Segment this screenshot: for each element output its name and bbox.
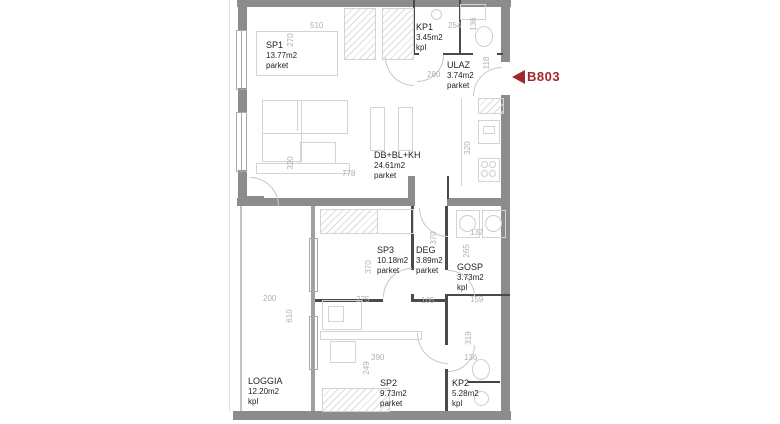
wall-segment-bottom bbox=[233, 411, 511, 420]
floorplan-canvas: SP1 13.77m2 parket KP1 3.45m2 kpl ULAZ 3… bbox=[0, 0, 780, 424]
dining-set-b bbox=[398, 107, 413, 151]
kitchen-sink-basin bbox=[483, 126, 495, 134]
dimension-label: 390 bbox=[371, 353, 384, 363]
room-area: 3.74m2 bbox=[447, 71, 474, 81]
dimension-label: 159 bbox=[470, 295, 483, 305]
room-area: 5.28m2 bbox=[452, 389, 479, 399]
room-name: KP1 bbox=[416, 22, 443, 33]
loggia-glass-line bbox=[240, 206, 242, 411]
wall-segment-left-3 bbox=[238, 170, 247, 197]
dimension-label: 320 bbox=[286, 150, 296, 176]
interior-wall-hall-c bbox=[497, 53, 503, 55]
room-name: ULAZ bbox=[447, 60, 474, 71]
room-label-sp2: SP2 9.73m2 parket bbox=[380, 378, 407, 409]
room-name: KP2 bbox=[452, 378, 479, 389]
dimension-label: 137 bbox=[470, 228, 483, 238]
dimension-label: 280 bbox=[427, 70, 440, 80]
unit-label: B803 bbox=[527, 69, 560, 84]
dimension-label: 610 bbox=[285, 303, 295, 329]
room-label-ulaz: ULAZ 3.74m2 parket bbox=[447, 60, 474, 91]
room-name: SP3 bbox=[377, 245, 408, 256]
sofa-divider-line bbox=[297, 101, 298, 131]
wardrobe-sp1-a bbox=[344, 8, 376, 60]
dimension-label: 320 bbox=[463, 135, 473, 161]
kitchen-upper-cabinet bbox=[478, 98, 504, 114]
room-name: LOGGIA bbox=[248, 376, 283, 387]
shower-drain-icon bbox=[431, 9, 442, 20]
window-loggia-upper bbox=[309, 238, 318, 292]
room-name: DB+BL+KH bbox=[374, 150, 421, 161]
room-floor: parket bbox=[380, 399, 407, 409]
kitchen-counter-edge bbox=[461, 98, 462, 186]
chair-sp3 bbox=[328, 306, 344, 322]
room-floor: parket bbox=[374, 171, 421, 181]
room-floor: kpl bbox=[416, 43, 443, 53]
interior-wall-col-c bbox=[445, 369, 448, 411]
room-floor: parket bbox=[266, 61, 297, 71]
room-floor: parket bbox=[416, 266, 443, 276]
dimension-label: 118 bbox=[482, 50, 492, 76]
wall-segment-right-main bbox=[501, 95, 510, 420]
door-arc-loggia bbox=[250, 177, 279, 206]
interior-wall-hall-b bbox=[443, 53, 473, 55]
room-area: 12.20m2 bbox=[248, 387, 283, 397]
room-label-loggia: LOGGIA 12.20m2 kpl bbox=[248, 376, 283, 407]
dimension-label: 275 bbox=[356, 295, 369, 305]
dimension-label: 370 bbox=[429, 225, 439, 251]
room-label-db-bl-kh: DB+BL+KH 24.61m2 parket bbox=[374, 150, 421, 181]
room-area: 10.18m2 bbox=[377, 256, 408, 266]
window-left-lower bbox=[236, 112, 247, 172]
dimension-label: 136 bbox=[464, 353, 477, 363]
wardrobe-sp3-hatch bbox=[320, 209, 378, 234]
room-label-kp1: KP1 3.45m2 kpl bbox=[416, 22, 443, 53]
unit-arrow-icon bbox=[512, 70, 525, 84]
tv-cabinet bbox=[256, 163, 350, 174]
window-loggia-lower bbox=[309, 316, 318, 370]
room-floor: kpl bbox=[248, 397, 283, 407]
dimension-label: 270 bbox=[286, 27, 296, 53]
dimension-label: 778 bbox=[342, 169, 355, 179]
room-area: 9.73m2 bbox=[380, 389, 407, 399]
stove-burner-icon bbox=[481, 170, 488, 177]
dimension-label: 319 bbox=[464, 325, 474, 351]
room-label-sp3: SP3 10.18m2 parket bbox=[377, 245, 408, 276]
room-floor: parket bbox=[377, 266, 408, 276]
interior-wall-kitchen bbox=[447, 176, 449, 199]
wall-segment-left-1 bbox=[238, 0, 247, 30]
wall-segment-left-2 bbox=[238, 88, 247, 112]
room-area: 3.89m2 bbox=[416, 256, 443, 266]
plot-boundary-line bbox=[229, 0, 230, 411]
dimension-label: 254 bbox=[448, 21, 461, 31]
washer-drum-icon bbox=[485, 215, 502, 232]
shelf-sp2 bbox=[320, 331, 422, 340]
sofa-vertical bbox=[262, 100, 302, 162]
room-floor: kpl bbox=[457, 283, 484, 293]
window-left-upper bbox=[236, 30, 247, 90]
dimension-label: 249 bbox=[362, 355, 372, 381]
room-label-kp2: KP2 5.28m2 kpl bbox=[452, 378, 479, 409]
dimension-label: 136 bbox=[469, 11, 479, 37]
room-area: 24.61m2 bbox=[374, 161, 421, 171]
room-name: SP2 bbox=[380, 378, 407, 389]
dimension-label: 105 bbox=[421, 296, 434, 306]
dimension-label: 200 bbox=[263, 294, 276, 304]
dimension-label: 370 bbox=[364, 254, 374, 280]
dimension-label: 510 bbox=[310, 21, 323, 31]
room-area: 3.73m2 bbox=[457, 273, 484, 283]
wall-segment-mid-right bbox=[447, 198, 510, 206]
unit-marker[interactable]: B803 bbox=[512, 69, 560, 84]
coffee-table bbox=[300, 142, 336, 164]
wardrobe-sp1-b bbox=[382, 8, 414, 60]
dimension-label: 265 bbox=[462, 238, 472, 264]
table-sp2 bbox=[330, 341, 356, 363]
stove-burner-icon bbox=[481, 161, 488, 168]
room-floor: kpl bbox=[452, 399, 479, 409]
room-floor: parket bbox=[447, 81, 474, 91]
stove-burner-icon bbox=[489, 170, 496, 177]
door-arc-sp1 bbox=[385, 57, 414, 86]
stove-burner-icon bbox=[489, 161, 496, 168]
room-area: 3.45m2 bbox=[416, 33, 443, 43]
interior-wall-loggia bbox=[311, 206, 315, 411]
dining-set-a bbox=[370, 107, 385, 151]
room-label-gosp: GOSP 3.73m2 kpl bbox=[457, 262, 484, 293]
